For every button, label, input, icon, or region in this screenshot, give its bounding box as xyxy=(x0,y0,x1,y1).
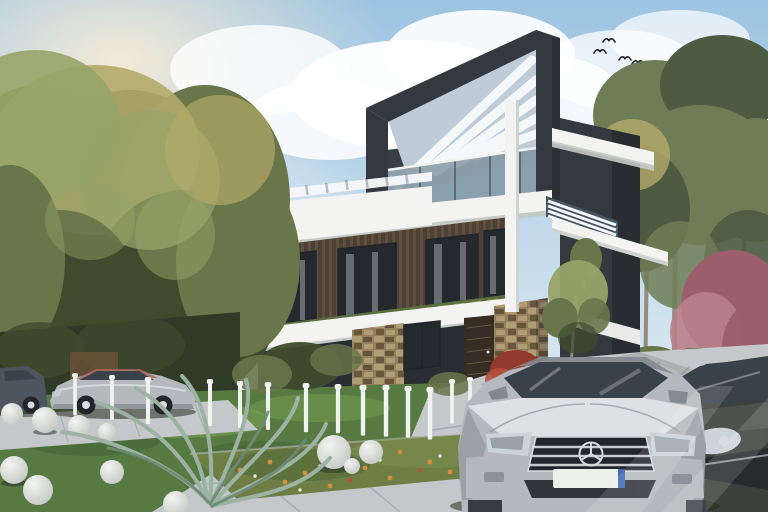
mercedes-windshield xyxy=(504,362,668,398)
ground-window xyxy=(404,321,440,370)
mercedes-mirror-right xyxy=(668,390,688,404)
door-handle xyxy=(487,351,490,354)
villa-render-image xyxy=(0,0,768,512)
scene-canvas xyxy=(0,0,768,512)
